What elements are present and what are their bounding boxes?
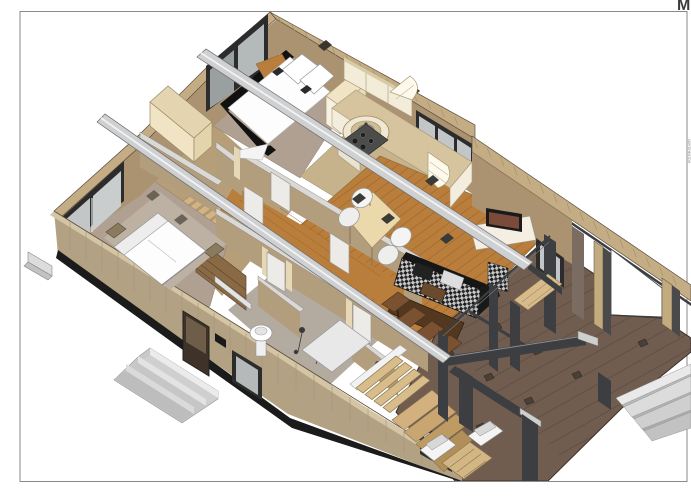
svg-text:M: M (677, 0, 690, 14)
svg-text:KOLMIKULMAT: KOLMIKULMAT (688, 139, 691, 163)
